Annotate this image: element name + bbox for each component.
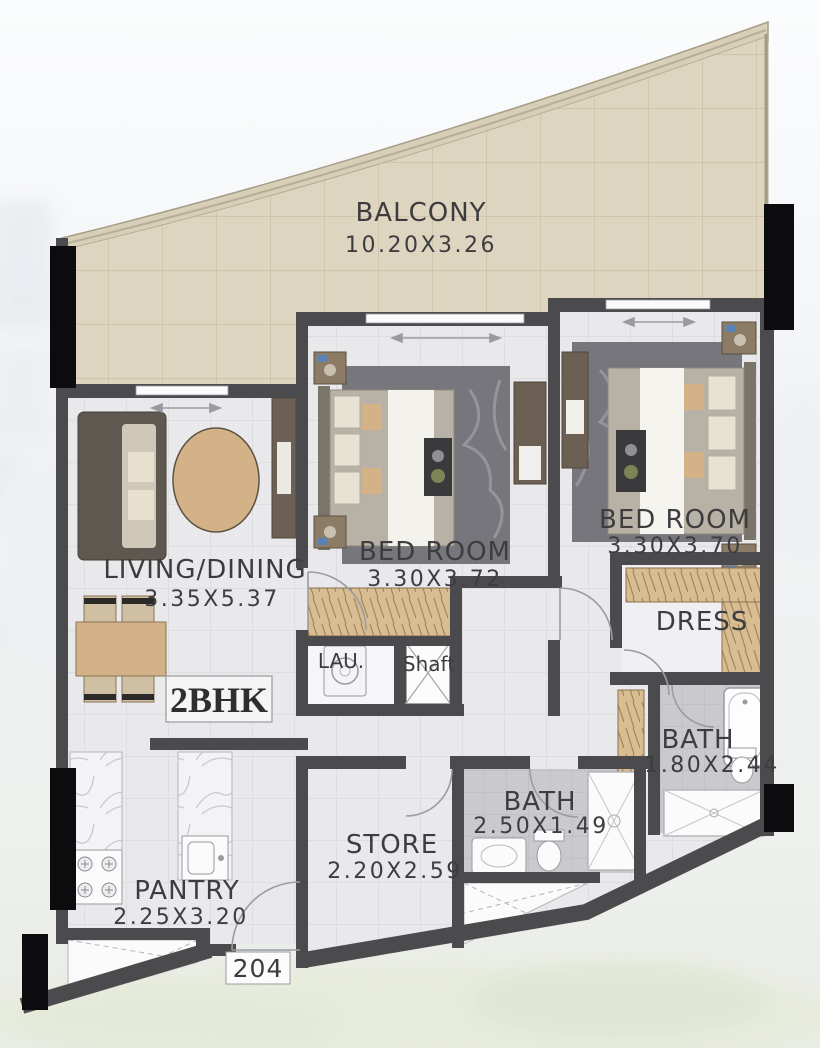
unit-number-badge: 204 (226, 952, 290, 984)
wall-bath-top-a (450, 756, 530, 769)
bedroom-right-dims: 3.30X3.70 (607, 534, 743, 559)
wall-hall-bedroom-right (548, 312, 560, 588)
nightstand-decor (318, 355, 328, 362)
sofa-pillow (128, 490, 154, 520)
pillow (708, 416, 736, 450)
pillow (708, 376, 736, 410)
accent-pillow (362, 468, 382, 494)
slider-bedroom-middle (366, 314, 524, 323)
tray-plant (624, 465, 638, 479)
nightstand-decor (318, 538, 328, 545)
tray-decor (625, 444, 637, 456)
bed-tray (616, 430, 646, 492)
floor-plan-page: BALCONY 10.20X3.26 LIVING/DINING 3.35X5.… (0, 0, 820, 1048)
faucet (218, 855, 224, 861)
balcony-label: BALCONY (355, 198, 486, 228)
pantry-counter (70, 752, 122, 858)
wall-store-bath (452, 756, 464, 948)
chair-back (122, 694, 154, 700)
slider-bedroom-right (606, 300, 710, 309)
chair-back (84, 694, 116, 700)
window-bar-left-upper (50, 246, 76, 388)
floor-plan-canvas: BALCONY 10.20X3.26 LIVING/DINING 3.35X5.… (0, 0, 820, 1048)
stove (72, 850, 122, 904)
bedroom-middle-dims: 3.30X3.72 (367, 567, 503, 592)
accent-pillow (684, 452, 704, 478)
store-label: STORE (346, 830, 438, 860)
wall-living-bedroom (296, 312, 308, 568)
nightstand-decor (726, 325, 736, 332)
wall-pantry-store (296, 756, 308, 968)
pillow (334, 396, 360, 428)
lamp-icon (734, 334, 746, 346)
window-bar-right-upper (764, 204, 794, 330)
wall-pantry-top (150, 738, 308, 750)
pantry-dims: 2.25X3.20 (113, 905, 249, 930)
wall-laundry-top (304, 636, 454, 646)
bath-common-label: BATH (503, 787, 576, 817)
bed-tray (424, 438, 452, 496)
bathtub-drain (743, 700, 748, 705)
window-bar-right-lower (764, 784, 794, 832)
window-bar-bottom-left (22, 934, 48, 1010)
sofa-pillow (128, 452, 154, 482)
pantry-label: PANTRY (134, 876, 239, 906)
bath-common-dims: 2.50X1.49 (473, 814, 609, 839)
dining-table (76, 622, 166, 676)
tv-console-panel (277, 442, 291, 494)
bedroom-middle-wardrobe (308, 588, 456, 636)
dress-wardrobe-top (626, 568, 768, 602)
desk-chair (519, 446, 541, 480)
bedroom-middle-label: BED ROOM (359, 537, 511, 567)
round-rug (173, 428, 259, 532)
pillow (334, 472, 360, 504)
lamp-icon (324, 526, 336, 538)
store-dims: 2.20X2.59 (327, 859, 463, 884)
desk-chair (566, 400, 584, 434)
laundry-label: LAU. (318, 649, 364, 673)
vanity-sink (472, 838, 526, 874)
shaft-label: Shaft (403, 652, 455, 676)
chair-back (84, 598, 116, 604)
tray-decor (432, 450, 444, 462)
lamp-icon (324, 364, 336, 376)
pillow (334, 434, 360, 466)
bath-ensuite-dims: 1.80X2.44 (644, 753, 780, 778)
unit-number-label: 204 (233, 954, 284, 983)
living-dining-label: LIVING/DINING (103, 555, 306, 585)
dress-label: DRESS (656, 607, 749, 637)
wall-dress-bath (610, 672, 768, 685)
slider-living (136, 386, 228, 395)
wall-store-top-a (296, 756, 406, 769)
wall-bath-common-bottom (464, 872, 600, 883)
bath-ensuite-label: BATH (661, 725, 734, 755)
bedroom-right-label: BED ROOM (599, 505, 751, 535)
wall-shaft-right (450, 576, 462, 716)
toilet-bowl (537, 841, 561, 871)
wall-laundry-bottom (296, 704, 464, 716)
living-dining-dims: 3.35X5.37 (144, 587, 280, 612)
window-bar-left-lower (50, 768, 76, 910)
wall-hall-lower (548, 640, 560, 716)
sofa-cushions (122, 424, 156, 548)
accent-pillow (684, 384, 704, 410)
balcony-dims: 10.20X3.26 (345, 233, 497, 258)
unit-type-badge: 2BHK (166, 676, 272, 722)
accent-pillow (362, 404, 382, 430)
pillow (708, 456, 736, 490)
unit-type-label: 2BHK (170, 680, 268, 720)
tray-plant (431, 469, 445, 483)
